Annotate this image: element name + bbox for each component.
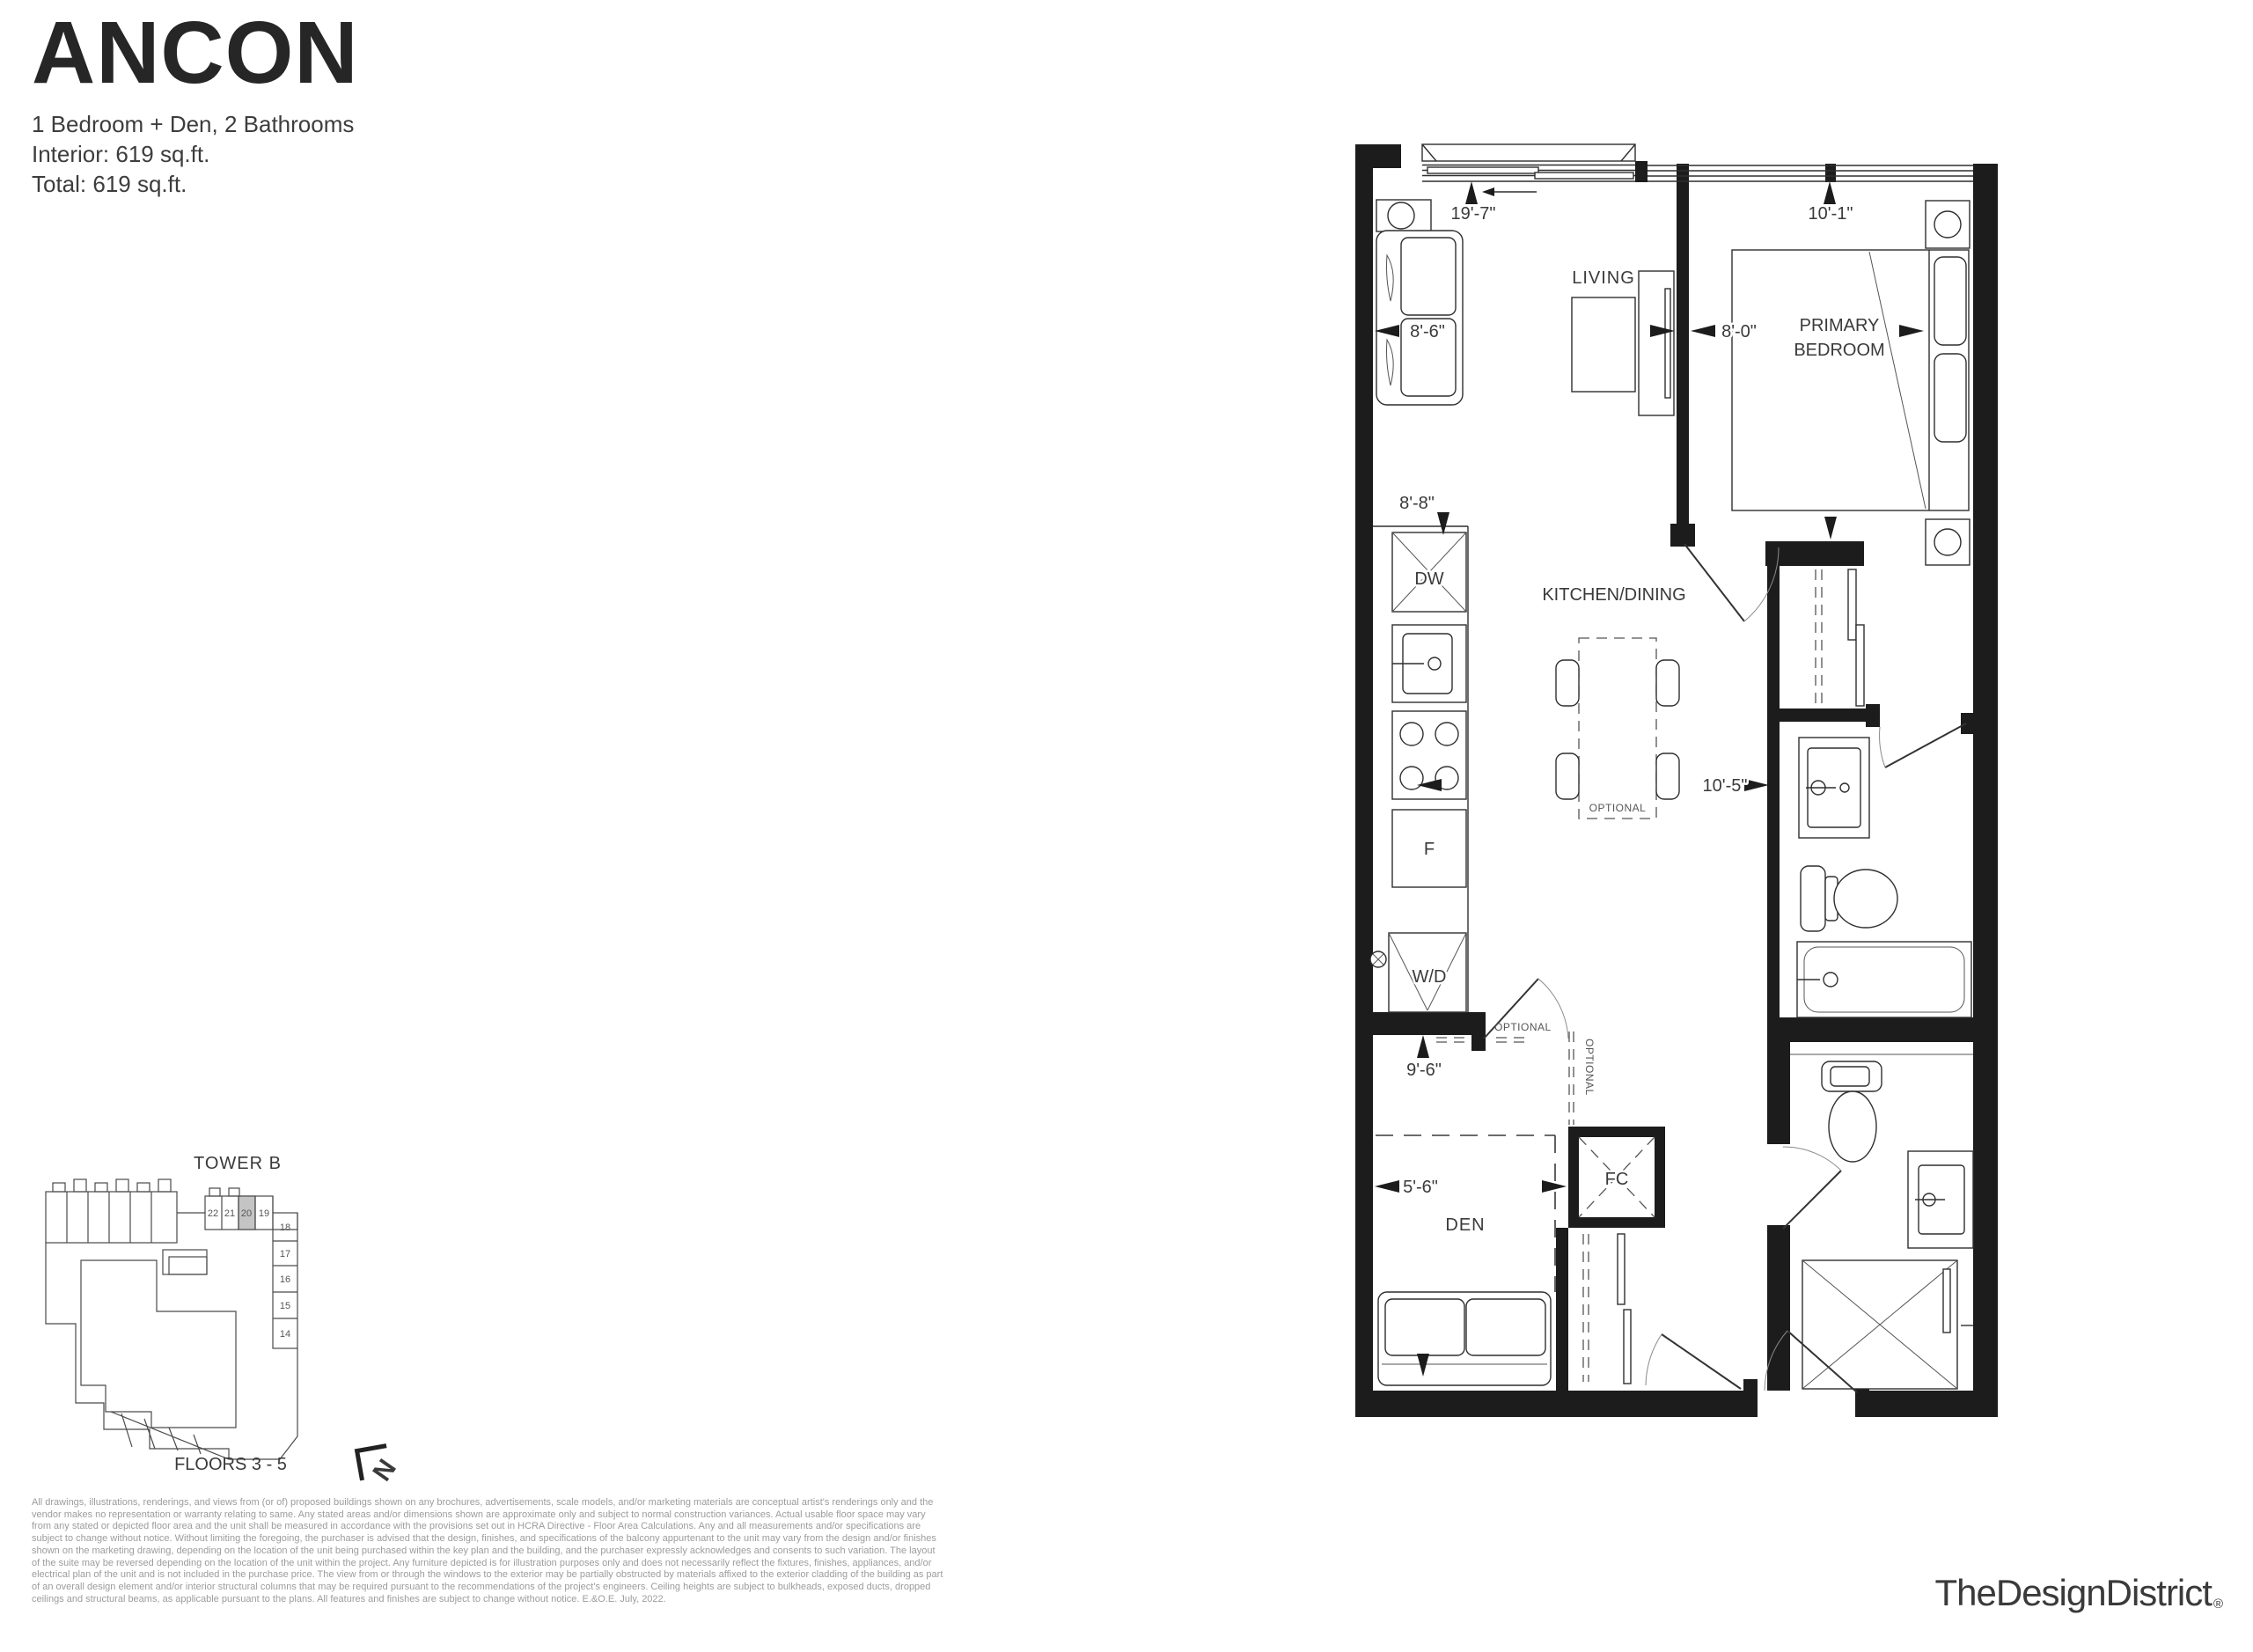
dishwasher: DW xyxy=(1392,532,1466,612)
unit-14: 14 xyxy=(280,1329,290,1340)
dishwasher-label: DW xyxy=(1414,569,1443,589)
dim-bedroom-window: 10'-1" xyxy=(1809,204,1853,224)
dim-bedroom-depth: 8'-0" xyxy=(1721,322,1757,341)
dim-den-width: 5'-6" xyxy=(1403,1178,1438,1197)
dim-den-length: 9'-6" xyxy=(1406,1061,1442,1080)
ensuite-door xyxy=(1880,723,1966,767)
dim-living-width: 8'-6" xyxy=(1410,322,1445,341)
unit-name-title: ANCON xyxy=(32,7,359,99)
interior-area: Interior: 619 sq.ft. xyxy=(32,139,359,169)
bed xyxy=(1732,250,1969,510)
living-side-table xyxy=(1376,200,1431,231)
den-label: DEN xyxy=(1445,1215,1485,1235)
washer-dryer-label: W/D xyxy=(1413,967,1447,987)
dim-kitchen-width: 8'-8" xyxy=(1399,494,1435,513)
key-plan: TOWER B xyxy=(26,1137,422,1516)
north-label: N xyxy=(367,1454,401,1487)
disclaimer-line: shown on the marketing drawing, dependin… xyxy=(32,1546,1264,1558)
unit-22: 22 xyxy=(208,1208,218,1219)
disclaimer-line: ceilings and structural beams, as applic… xyxy=(32,1594,1264,1606)
ensuite-toilet xyxy=(1801,866,1897,931)
optional-wall-label-vertical: OPTIONAL xyxy=(1583,1039,1596,1096)
washer-dryer: W/D xyxy=(1370,933,1466,1012)
tv-console xyxy=(1639,271,1674,415)
kitchen-dining-label: KITCHEN/DINING xyxy=(1542,585,1685,605)
dim-kitchen-length: 10'-5" xyxy=(1703,776,1748,796)
legal-disclaimer: All drawings, illustrations, renderings,… xyxy=(32,1497,1264,1605)
unit-19: 19 xyxy=(259,1208,269,1219)
primary-bedroom-label-1: PRIMARY xyxy=(1800,316,1880,335)
disclaimer-line: of an overall design element and/or inte… xyxy=(32,1582,1264,1594)
building-outline xyxy=(46,1179,297,1459)
floor-plan-drawing: DW F W/D OPTIONAL xyxy=(1355,132,2033,1450)
coffee-table xyxy=(1572,297,1635,392)
unit-17: 17 xyxy=(280,1249,290,1259)
hall-closet xyxy=(1583,1234,1631,1384)
unit-15: 15 xyxy=(280,1301,290,1311)
unit-21: 21 xyxy=(224,1208,235,1219)
floors-label: FLOORS 3 - 5 xyxy=(174,1455,287,1474)
den-sofa xyxy=(1378,1292,1551,1385)
fridge: F xyxy=(1392,810,1466,887)
dining-optional-label: OPTIONAL xyxy=(1589,802,1647,814)
bath2-toilet xyxy=(1822,1061,1882,1162)
bath2-vanity xyxy=(1908,1151,1973,1248)
brand-logo-text: TheDesignDistrict xyxy=(1935,1572,2212,1613)
living-label: LIVING xyxy=(1572,268,1635,288)
dining-table-optional: OPTIONAL xyxy=(1556,638,1679,819)
living-sofa xyxy=(1376,231,1463,405)
bedroom-door xyxy=(1684,544,1779,621)
disclaimer-line: subject to change without notice. Withou… xyxy=(32,1533,1264,1546)
unit-16: 16 xyxy=(280,1274,290,1285)
ensuite-vanity xyxy=(1799,738,1869,838)
disclaimer-line: of the suite may be reversed depending o… xyxy=(32,1558,1264,1570)
registered-mark: ® xyxy=(2213,1597,2223,1612)
unit-18: 18 xyxy=(280,1222,290,1233)
plan-header: ANCON 1 Bedroom + Den, 2 Bathrooms Inter… xyxy=(32,7,359,199)
unit-config: 1 Bedroom + Den, 2 Bathrooms xyxy=(32,109,359,139)
balcony-window xyxy=(1422,144,1635,181)
primary-bedroom-label-2: BEDROOM xyxy=(1794,341,1884,360)
bedroom-window xyxy=(1648,165,1973,181)
bath2-door xyxy=(1783,1147,1841,1229)
bathtub xyxy=(1797,942,1971,1017)
disclaimer-line: All drawings, illustrations, renderings,… xyxy=(32,1497,1264,1509)
brand-logo: TheDesignDistrict® xyxy=(1935,1572,2224,1614)
tower-label: TOWER B xyxy=(194,1154,282,1173)
floorplan-sheet: { "header": { "title": "ANCON", "subtitl… xyxy=(0,0,2253,1652)
den-optional-walls xyxy=(1376,1032,1574,1292)
optional-wall-label: OPTIONAL xyxy=(1494,1021,1552,1033)
unit-20: 20 xyxy=(241,1208,252,1219)
disclaimer-line: electrical plan of the unit and is not i… xyxy=(32,1569,1264,1582)
fridge-label: F xyxy=(1424,840,1435,859)
north-arrow-icon: N xyxy=(345,1434,409,1496)
total-area: Total: 619 sq.ft. xyxy=(32,169,359,199)
bedroom-closet xyxy=(1816,569,1864,706)
shower xyxy=(1802,1260,1973,1389)
nightstand-bottom xyxy=(1926,519,1970,565)
fan-coil-closet: FC xyxy=(1568,1127,1665,1228)
disclaimer-line: vendor makes no representation or warran… xyxy=(32,1509,1264,1522)
kitchen-sink xyxy=(1392,625,1466,702)
nightstand-top xyxy=(1926,201,1970,248)
disclaimer-line: from any stated or depicted floor area a… xyxy=(32,1521,1264,1533)
dim-balcony: 19'-7" xyxy=(1451,204,1496,224)
fan-coil-label: FC xyxy=(1605,1170,1629,1189)
